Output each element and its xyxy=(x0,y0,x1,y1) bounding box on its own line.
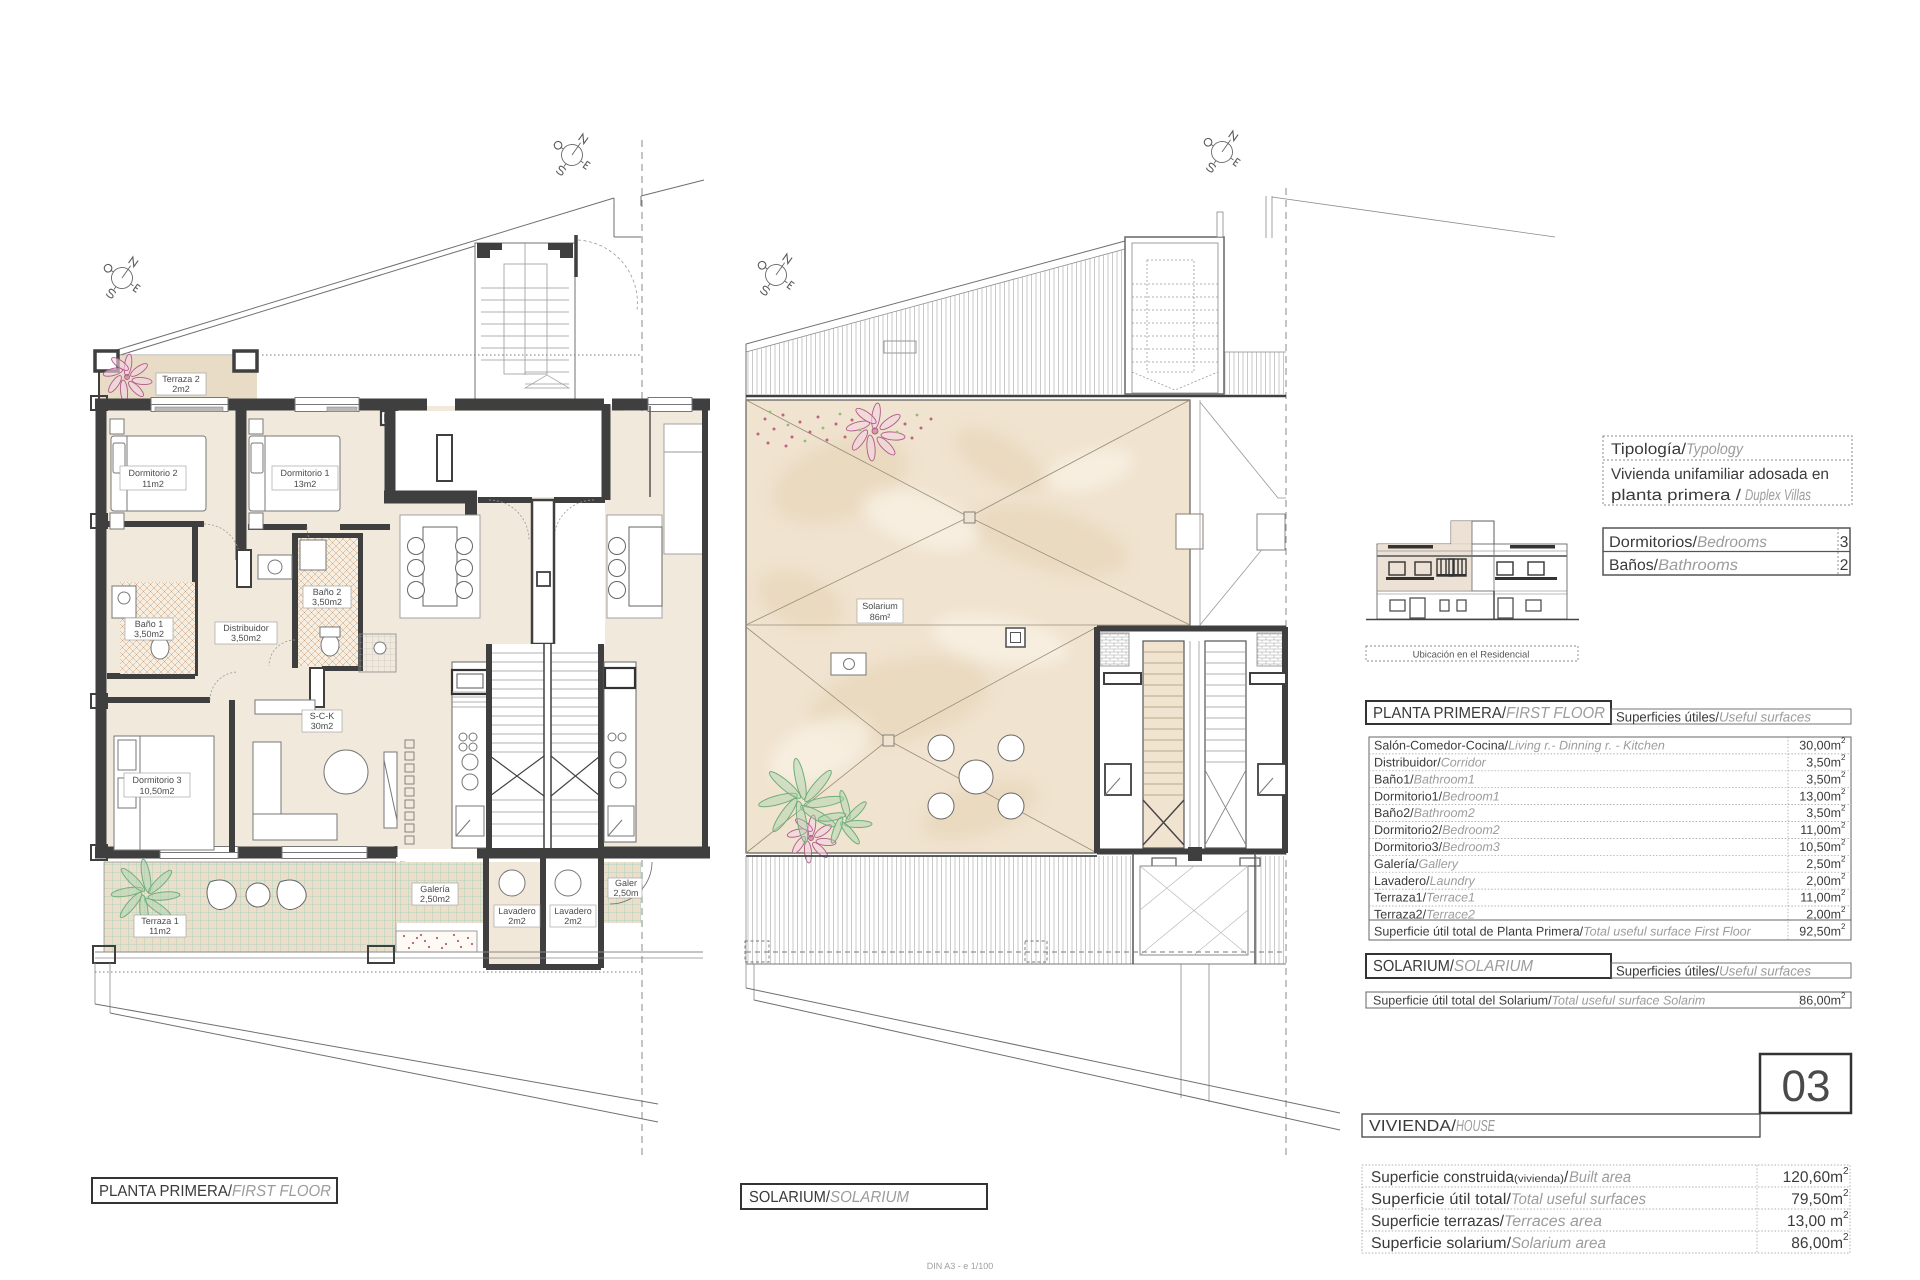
svg-text:Galería/Gallery: Galería/Gallery xyxy=(1374,857,1459,871)
svg-text:2: 2 xyxy=(1841,838,1846,847)
svg-text:2,50m: 2,50m xyxy=(613,888,638,898)
svg-text:2: 2 xyxy=(1841,736,1846,745)
svg-text:Dormitorio 1: Dormitorio 1 xyxy=(280,468,329,478)
svg-text:Solarium: Solarium xyxy=(862,601,898,611)
svg-text:Baño 1: Baño 1 xyxy=(135,619,164,629)
svg-text:Terraza 2: Terraza 2 xyxy=(162,374,200,384)
svg-text:2: 2 xyxy=(1841,821,1846,830)
svg-text:3,50m: 3,50m xyxy=(1806,756,1841,770)
svg-text:11m2: 11m2 xyxy=(149,926,171,936)
svg-text:3,50m2: 3,50m2 xyxy=(134,629,164,639)
svg-text:2: 2 xyxy=(1841,922,1846,931)
svg-text:Tipología/: Tipología/ xyxy=(1611,441,1687,458)
svg-text:2: 2 xyxy=(1843,1166,1849,1177)
svg-text:SOLARIUM/: SOLARIUM/ xyxy=(1373,958,1455,975)
svg-text:Superficie terrazas/: Superficie terrazas/ xyxy=(1371,1213,1505,1230)
svg-text:30m2: 30m2 xyxy=(311,721,334,731)
svg-text:Distribuidor/Corridor: Distribuidor/Corridor xyxy=(1374,756,1487,770)
svg-text:PLANTA PRIMERA/: PLANTA PRIMERA/ xyxy=(99,1183,233,1200)
svg-text:HOUSE: HOUSE xyxy=(1456,1118,1495,1135)
svg-text:10,50m: 10,50m xyxy=(1799,840,1841,854)
svg-text:Dormitorio 3: Dormitorio 3 xyxy=(132,775,181,785)
svg-text:Superficie útil total de Plant: Superficie útil total de Planta Primera/… xyxy=(1374,925,1752,939)
svg-text:2: 2 xyxy=(1840,557,1849,574)
svg-text:2,50m2: 2,50m2 xyxy=(420,894,450,904)
svg-text:VIVIENDA/: VIVIENDA/ xyxy=(1369,1118,1457,1135)
svg-text:2: 2 xyxy=(1843,1210,1849,1221)
svg-text:Built area: Built area xyxy=(1569,1169,1631,1186)
svg-text:Bedrooms: Bedrooms xyxy=(1697,534,1767,551)
svg-text:Lavadero: Lavadero xyxy=(498,906,536,916)
svg-text:Useful surfaces: Useful surfaces xyxy=(1719,710,1811,725)
svg-text:03: 03 xyxy=(1782,1062,1831,1111)
svg-text:3,50m2: 3,50m2 xyxy=(312,597,342,607)
svg-text:Superficie solarium/: Superficie solarium/ xyxy=(1371,1235,1512,1252)
svg-text:2: 2 xyxy=(1841,753,1846,762)
svg-text:Terraza2/Terrace2: Terraza2/Terrace2 xyxy=(1374,908,1475,922)
svg-text:30,00m: 30,00m xyxy=(1799,739,1841,753)
svg-text:Superficies útiles/: Superficies útiles/ xyxy=(1616,710,1719,725)
svg-text:11,00m: 11,00m xyxy=(1800,823,1841,837)
svg-text:Terraza 1: Terraza 1 xyxy=(141,916,179,926)
svg-text:Terraza1/Terrace1: Terraza1/Terrace1 xyxy=(1374,891,1475,905)
svg-text:Superficie útil total del Sola: Superficie útil total del Solarium/Total… xyxy=(1373,994,1705,1008)
svg-text:Galería: Galería xyxy=(420,884,450,894)
svg-text:Dormitorios/: Dormitorios/ xyxy=(1609,534,1698,551)
svg-text:Dormitorio 2: Dormitorio 2 xyxy=(128,468,177,478)
svg-text:86m²: 86m² xyxy=(870,612,891,622)
svg-text:PLANTA PRIMERA/: PLANTA PRIMERA/ xyxy=(1373,705,1507,722)
svg-text:2: 2 xyxy=(1841,888,1846,897)
svg-text:3,50m: 3,50m xyxy=(1806,772,1841,786)
svg-text:2: 2 xyxy=(1841,804,1846,813)
svg-text:FIRST FLOOR: FIRST FLOOR xyxy=(232,1183,331,1200)
svg-text:2,00m: 2,00m xyxy=(1806,874,1841,888)
svg-text:2,50m: 2,50m xyxy=(1806,857,1841,871)
svg-text:Bathrooms: Bathrooms xyxy=(1658,557,1738,574)
svg-text:2m2: 2m2 xyxy=(564,916,582,926)
svg-text:Superficie construida: Superficie construida xyxy=(1371,1169,1514,1186)
svg-text:2m2: 2m2 xyxy=(508,916,526,926)
svg-text:Baño2/Bathroom2: Baño2/Bathroom2 xyxy=(1374,806,1475,820)
svg-text:Salón-Comedor-Cocina/Living r.: Salón-Comedor-Cocina/Living r.- Dinning … xyxy=(1374,739,1665,753)
svg-text:DIN A3 - e 1/100: DIN A3 - e 1/100 xyxy=(927,1261,994,1271)
svg-text:Dormitorio1/Bedroom1: Dormitorio1/Bedroom1 xyxy=(1374,789,1500,803)
svg-text:Terraces area: Terraces area xyxy=(1504,1213,1602,1230)
svg-text:(vivienda): (vivienda) xyxy=(1514,1173,1564,1185)
svg-text:Dormitorio3/Bedroom3: Dormitorio3/Bedroom3 xyxy=(1374,840,1500,854)
svg-text:2m2: 2m2 xyxy=(172,384,190,394)
svg-text:Superficie útil total/: Superficie útil total/ xyxy=(1371,1191,1512,1208)
svg-text:2: 2 xyxy=(1841,991,1846,1000)
svg-text:Ubicación en el Residencial: Ubicación en el Residencial xyxy=(1413,650,1530,661)
svg-text:Baños/: Baños/ xyxy=(1609,557,1659,574)
svg-text:13m2: 13m2 xyxy=(294,479,317,489)
svg-text:Duplex Villas: Duplex Villas xyxy=(1745,487,1811,504)
svg-text:Lavadero: Lavadero xyxy=(554,906,592,916)
svg-text:3: 3 xyxy=(1840,534,1849,551)
svg-text:SOLARIUM/: SOLARIUM/ xyxy=(749,1189,831,1206)
svg-text:11m2: 11m2 xyxy=(142,479,164,489)
svg-text:FIRST FLOOR: FIRST FLOOR xyxy=(1506,705,1605,722)
svg-text:3,50m: 3,50m xyxy=(1806,806,1841,820)
svg-text:Baño 2: Baño 2 xyxy=(313,587,342,597)
svg-text:2: 2 xyxy=(1841,787,1846,796)
svg-text:2: 2 xyxy=(1841,770,1846,779)
svg-text:2: 2 xyxy=(1843,1188,1849,1199)
svg-text:Total useful surfaces: Total useful surfaces xyxy=(1511,1191,1646,1208)
svg-text:SOLARIUM: SOLARIUM xyxy=(1454,958,1534,975)
svg-text:2: 2 xyxy=(1843,1232,1849,1243)
svg-text:10,50m2: 10,50m2 xyxy=(139,786,174,796)
svg-text:2: 2 xyxy=(1841,871,1846,880)
svg-text:Superficies útiles/: Superficies útiles/ xyxy=(1616,964,1719,979)
svg-text:2: 2 xyxy=(1841,854,1846,863)
svg-text:planta primera /: planta primera / xyxy=(1611,487,1742,504)
svg-text:3,50m2: 3,50m2 xyxy=(231,633,261,643)
svg-text:2: 2 xyxy=(1841,905,1846,914)
svg-text:Vivienda unifamiliar adosada e: Vivienda unifamiliar adosada en xyxy=(1611,466,1829,483)
svg-text:SOLARIUM: SOLARIUM xyxy=(830,1189,910,1206)
svg-text:Useful surfaces: Useful surfaces xyxy=(1719,964,1811,979)
svg-text:13,00m: 13,00m xyxy=(1799,789,1841,803)
svg-text:Dormitorio2/Bedroom2: Dormitorio2/Bedroom2 xyxy=(1374,823,1500,837)
svg-text:2,00m: 2,00m xyxy=(1806,908,1841,922)
svg-text:Lavadero/Laundry: Lavadero/Laundry xyxy=(1374,874,1476,888)
svg-text:Distribuidor: Distribuidor xyxy=(223,623,269,633)
svg-text:86,00m: 86,00m xyxy=(1799,994,1841,1008)
svg-text:86,00m: 86,00m xyxy=(1791,1235,1843,1252)
svg-text:Solarium area: Solarium area xyxy=(1511,1235,1606,1252)
svg-text:11,00m: 11,00m xyxy=(1800,891,1841,905)
svg-text:79,50m: 79,50m xyxy=(1791,1191,1843,1208)
svg-text:120,60m: 120,60m xyxy=(1783,1169,1843,1186)
svg-text:Galer: Galer xyxy=(615,878,637,888)
svg-text:92,50m: 92,50m xyxy=(1799,925,1841,939)
svg-text:S-C-K: S-C-K xyxy=(310,711,335,721)
svg-text:13,00 m: 13,00 m xyxy=(1787,1213,1843,1230)
svg-text:Baño1/Bathroom1: Baño1/Bathroom1 xyxy=(1374,772,1475,786)
svg-text:Typology: Typology xyxy=(1686,441,1744,458)
